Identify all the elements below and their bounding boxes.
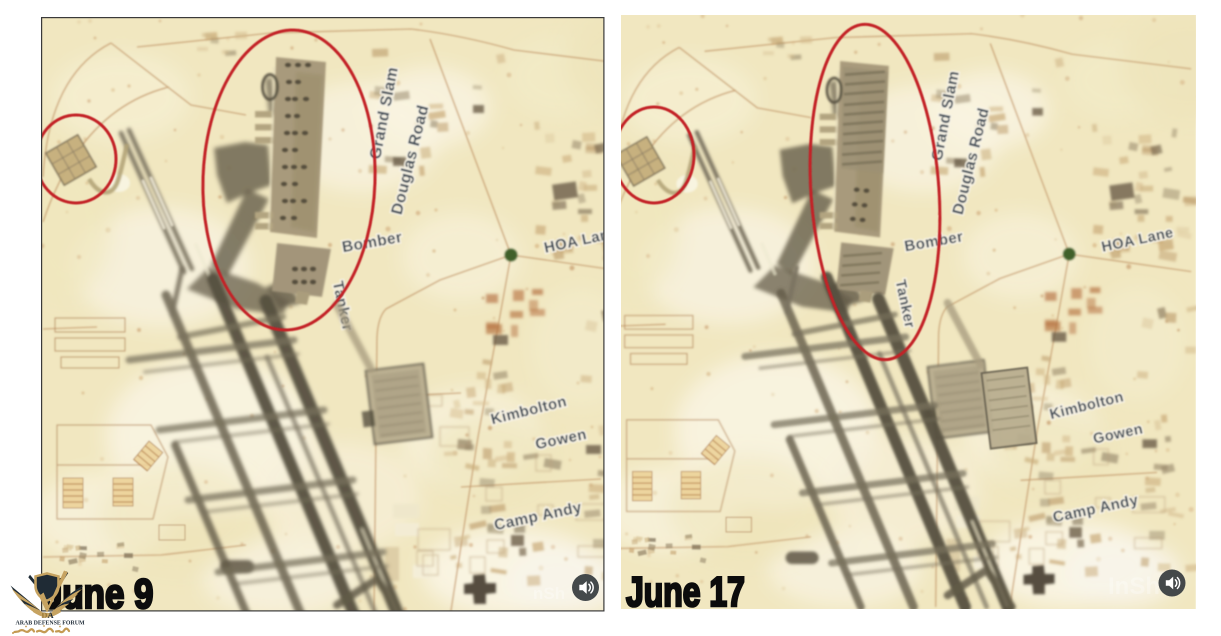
svg-text:ARAB DEFENSE FORUM: ARAB DEFENSE FORUM bbox=[15, 621, 84, 627]
svg-text:nSh: nSh bbox=[533, 584, 565, 603]
svg-text:June 17: June 17 bbox=[626, 568, 745, 615]
svg-text:InSh: InSh bbox=[1108, 573, 1160, 600]
svg-text:DA: DA bbox=[41, 610, 54, 620]
